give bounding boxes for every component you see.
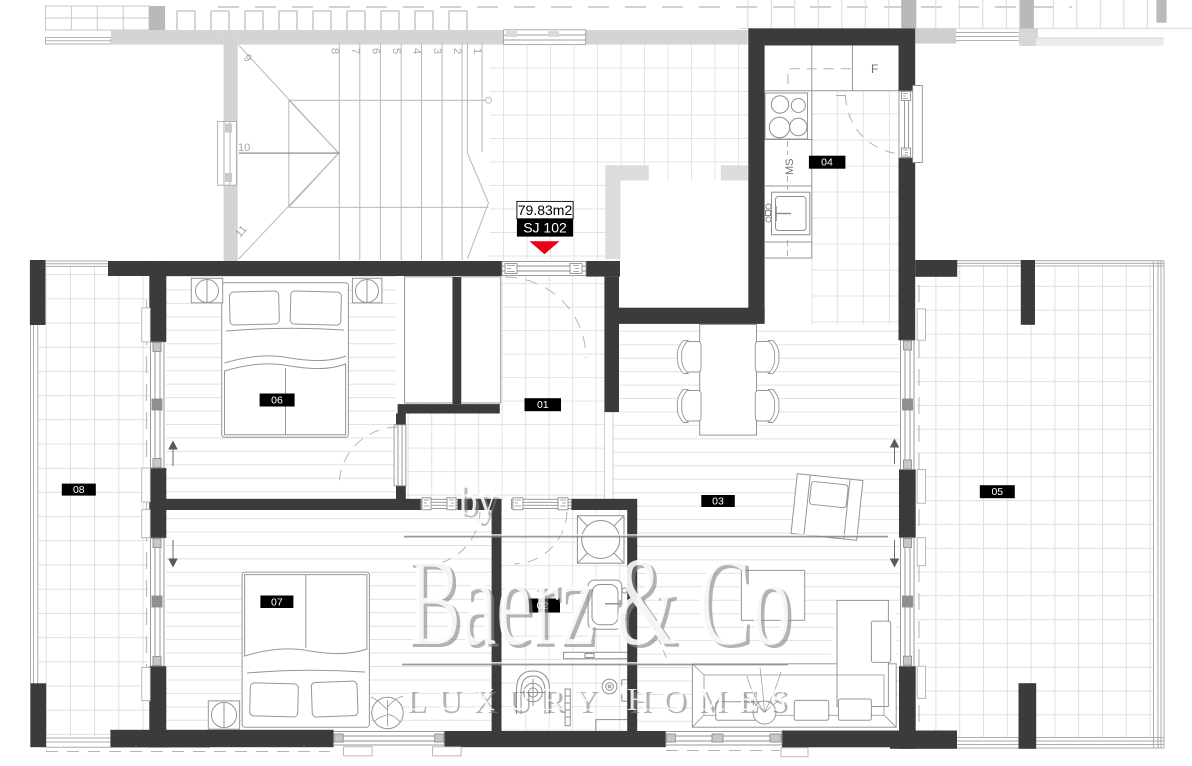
svg-text:08: 08 xyxy=(73,484,85,496)
svg-text:MS: MS xyxy=(784,159,796,176)
svg-text:SJ 102: SJ 102 xyxy=(523,220,567,236)
svg-text:Baerz & Co: Baerz & Co xyxy=(407,533,791,672)
svg-text:1: 1 xyxy=(471,48,483,54)
svg-text:5: 5 xyxy=(390,48,402,54)
svg-text:07: 07 xyxy=(271,596,283,608)
svg-text:03: 03 xyxy=(712,496,724,508)
svg-text:04: 04 xyxy=(821,157,833,169)
svg-text:6: 6 xyxy=(370,48,382,54)
svg-text:10: 10 xyxy=(238,142,250,154)
svg-text:05: 05 xyxy=(991,486,1003,498)
svg-text:4: 4 xyxy=(411,48,423,54)
svg-text:8: 8 xyxy=(329,48,341,54)
svg-text:2: 2 xyxy=(451,48,463,54)
svg-text:by: by xyxy=(459,478,496,524)
svg-text:7: 7 xyxy=(349,48,361,54)
svg-text:01: 01 xyxy=(537,399,549,411)
svg-text:3: 3 xyxy=(431,48,443,54)
svg-text:06: 06 xyxy=(271,395,283,407)
svg-text:F: F xyxy=(871,62,878,76)
svg-text:79.83m2: 79.83m2 xyxy=(518,202,573,218)
